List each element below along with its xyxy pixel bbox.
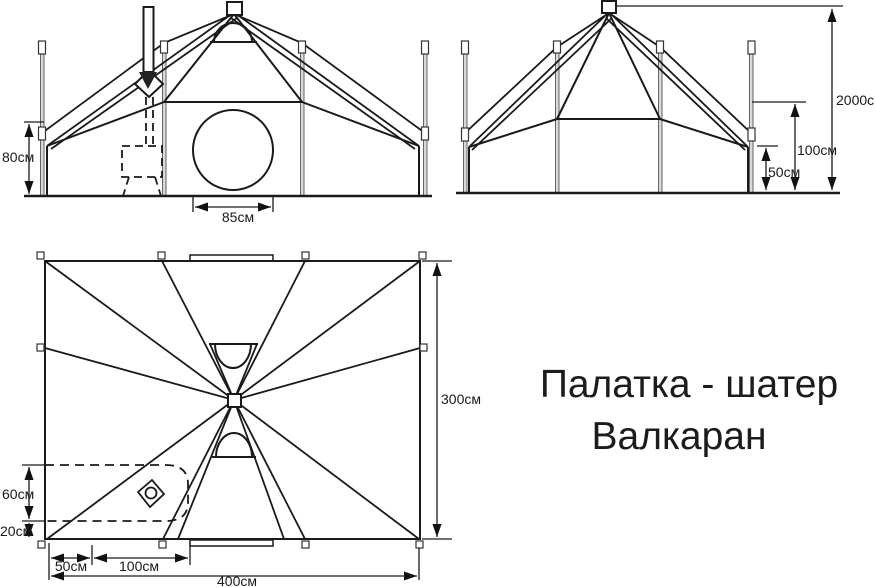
plan-stove-margin-label: 20см [0, 523, 32, 539]
front-peak-cap [227, 2, 242, 15]
front-pole-clips [39, 41, 429, 140]
side-eave-height-label: 100см [797, 142, 837, 158]
side-hip-seams [469, 13, 748, 150]
side-eave-left [469, 119, 557, 147]
chimney-hidden-pipe [146, 97, 153, 146]
plan-width-label: 300см [441, 391, 481, 407]
front-hip-seams [47, 13, 419, 149]
drawing-title: Палатка - шатер Валкаран [540, 363, 838, 458]
chimney [122, 7, 163, 196]
title-line-1: Палатка - шатер [540, 363, 838, 406]
front-wall-poles [163, 42, 305, 196]
plan-stove-symbol [138, 480, 164, 507]
chimney-pipe [144, 7, 154, 72]
side-total-height-label: 2000см [836, 92, 875, 108]
front-outer-poles [41, 42, 428, 196]
plan-dimensions [22, 261, 452, 580]
plan-stove-depth-label: 60см [2, 486, 34, 502]
front-window [193, 110, 273, 190]
title-line-2: Валкаран [592, 415, 767, 458]
plan-door-flap-bottom [190, 540, 273, 546]
plan-stove-offset-label: 50см [55, 558, 87, 574]
side-peak-cap [602, 1, 616, 13]
side-mid-poles [556, 42, 663, 193]
tent-technical-drawing: 80см 85см [0, 0, 875, 587]
plan-stove-zone [45, 465, 188, 521]
front-wall-height-label: 80см [2, 149, 34, 165]
tent-drawing-sheet: 80см 85см [0, 0, 875, 587]
plan-center-opening [228, 394, 241, 407]
side-pole-clips [462, 41, 756, 141]
plan-length-label: 400см [217, 573, 257, 587]
side-corner-height-label: 50см [768, 164, 800, 180]
stove-hidden-outline [122, 146, 162, 196]
front-roof-vent [210, 23, 257, 42]
front-elevation-view [24, 2, 432, 212]
plan-stove-length-label: 100см [119, 558, 159, 574]
front-eave-right [302, 102, 419, 146]
plan-view [22, 252, 452, 580]
front-window-label: 85см [222, 209, 254, 225]
